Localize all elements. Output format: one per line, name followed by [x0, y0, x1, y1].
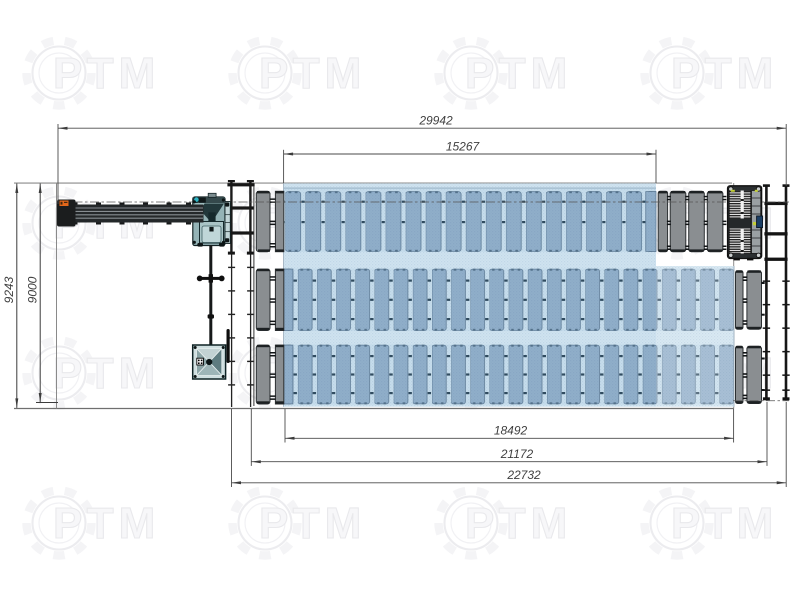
svg-text:21172: 21172 — [500, 447, 534, 461]
svg-text:18492: 18492 — [494, 424, 528, 438]
svg-text:22732: 22732 — [506, 468, 541, 482]
svg-text:9243: 9243 — [2, 276, 16, 303]
svg-text:29942: 29942 — [418, 114, 453, 128]
svg-text:9000: 9000 — [25, 276, 39, 303]
svg-text:15267: 15267 — [446, 139, 481, 153]
